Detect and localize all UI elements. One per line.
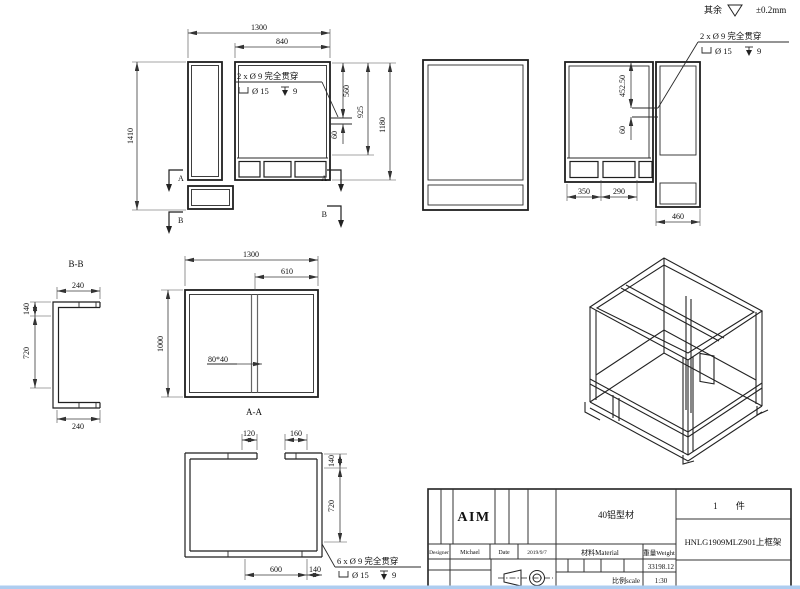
front-view: 1300 840 1410 560 60 925 1180 2 x Ø 9 完全… [126, 23, 396, 234]
quantity: 1 件 [713, 500, 753, 511]
front-dim-925: 925 [356, 106, 365, 118]
date-label: Date [498, 550, 510, 556]
counterbore-icon [702, 47, 711, 53]
front-dim-1300: 1300 [251, 23, 267, 32]
weight-value: 33198.12 [648, 563, 675, 571]
side-view [423, 60, 528, 210]
aa-dim-140-right: 140 [327, 455, 336, 467]
drawing-title: HNLG1909MLZ901上框架 [685, 537, 782, 547]
right-hole-note-depth: 9 [757, 46, 761, 56]
front-dim-1180: 1180 [378, 117, 387, 133]
depth-icon [745, 47, 753, 56]
front-hole-note: 2 x Ø 9 完全贯穿 Ø 15 9 [236, 71, 338, 117]
company-logo: AIM [457, 510, 490, 525]
scale-value: 1:30 [655, 577, 668, 585]
plan-profile-note: 80*40 [208, 355, 228, 364]
drawing-canvas: 其余 ±0.2mm 1300 840 1410 [0, 0, 800, 589]
depth-icon [281, 87, 289, 96]
bb-dim-bottom-240: 240 [72, 422, 84, 431]
front-hole-note-depth: 9 [293, 86, 297, 96]
bb-dim-top-240: 240 [72, 281, 84, 290]
front-hole-note-dia: Ø 15 [252, 86, 269, 96]
section-letter: B [178, 216, 183, 225]
surface-finish-note: 其余 ±0.2mm [704, 4, 786, 16]
right-dim-452: 452.50 [618, 75, 627, 97]
section-mark-b-right: B [322, 206, 344, 228]
counterbore-icon [239, 87, 248, 93]
section-letter: A [321, 174, 327, 183]
section-bb-view: B-B 240 140 720 240 [22, 259, 100, 431]
title-block: AIM Designer Michael Date 2019/9/7 40铝型材… [428, 489, 791, 587]
front-dim-560: 560 [342, 85, 351, 97]
front-dim-60: 60 [330, 131, 339, 139]
section-mark-b-left: B [166, 212, 183, 234]
section-mark-a-left: A [166, 170, 184, 192]
section-bb-label: B-B [68, 259, 83, 269]
aa-hole-note: 6 x Ø 9 完全贯穿 Ø 15 9 [322, 544, 421, 580]
aa-hole-note-dia: Ø 15 [352, 570, 369, 580]
surface-finish-triangle-icon [728, 5, 742, 16]
aa-dim-160: 160 [290, 429, 302, 438]
aa-dim-600: 600 [270, 565, 282, 574]
plan-dim-1300: 1300 [243, 250, 259, 259]
date-value: 2019/9/7 [527, 550, 547, 556]
aa-dim-140-bottom: 140 [309, 565, 321, 574]
plan-dim-1000: 1000 [156, 336, 165, 352]
front-dim-840: 840 [276, 37, 288, 46]
right-dim-460: 460 [672, 212, 684, 221]
front-hole-note-line1: 2 x Ø 9 完全贯穿 [237, 71, 298, 81]
aa-hole-note-depth: 9 [392, 570, 396, 580]
right-hole-note-dia: Ø 15 [715, 46, 732, 56]
counterbore-icon [339, 571, 348, 577]
material-spec: 40铝型材 [598, 509, 634, 520]
right-hole-note: 2 x Ø 9 完全贯穿 Ø 15 9 [658, 31, 789, 108]
projection-symbol-icon [498, 570, 553, 586]
right-hole-note-line1: 2 x Ø 9 完全贯穿 [700, 31, 761, 41]
front-dim-1410: 1410 [126, 128, 135, 144]
aa-hole-note-line1: 6 x Ø 9 完全贯穿 [337, 556, 398, 566]
section-aa-label: A-A [246, 407, 262, 417]
right-dim-290: 290 [613, 187, 625, 196]
aa-dim-120: 120 [243, 429, 255, 438]
plan-view: 1300 610 1000 80*40 A-A [156, 250, 318, 417]
section-aa-view: 120 160 140 720 600 140 6 x Ø 9 完全贯穿 Ø 1… [185, 429, 421, 580]
right-view: 452.50 60 350 290 460 2 x Ø 9 完全贯穿 Ø 15 [565, 31, 789, 226]
bb-dim-140: 140 [22, 303, 31, 315]
depth-icon [380, 571, 388, 580]
section-mark-a-right: A [321, 170, 344, 192]
designer-label: Designer [429, 550, 449, 556]
weight-label: 重量Weight [643, 549, 675, 557]
plan-dim-610: 610 [281, 267, 293, 276]
section-letter: B [322, 210, 327, 219]
section-letter: A [178, 174, 184, 183]
surface-note-tolerance: ±0.2mm [756, 5, 786, 15]
window-edge-strip [0, 586, 800, 589]
isometric-view [585, 258, 768, 464]
bb-dim-720: 720 [22, 347, 31, 359]
designer-value: Michael [460, 550, 480, 556]
cad-drawing-sheet: 其余 ±0.2mm 1300 840 1410 [0, 0, 800, 589]
material-label: 材料Material [581, 548, 619, 557]
right-dim-350: 350 [578, 187, 590, 196]
surface-note-prefix: 其余 [704, 4, 722, 15]
right-dim-60: 60 [618, 126, 627, 134]
aa-dim-720: 720 [327, 500, 336, 512]
scale-label: 比例scale [612, 576, 640, 585]
